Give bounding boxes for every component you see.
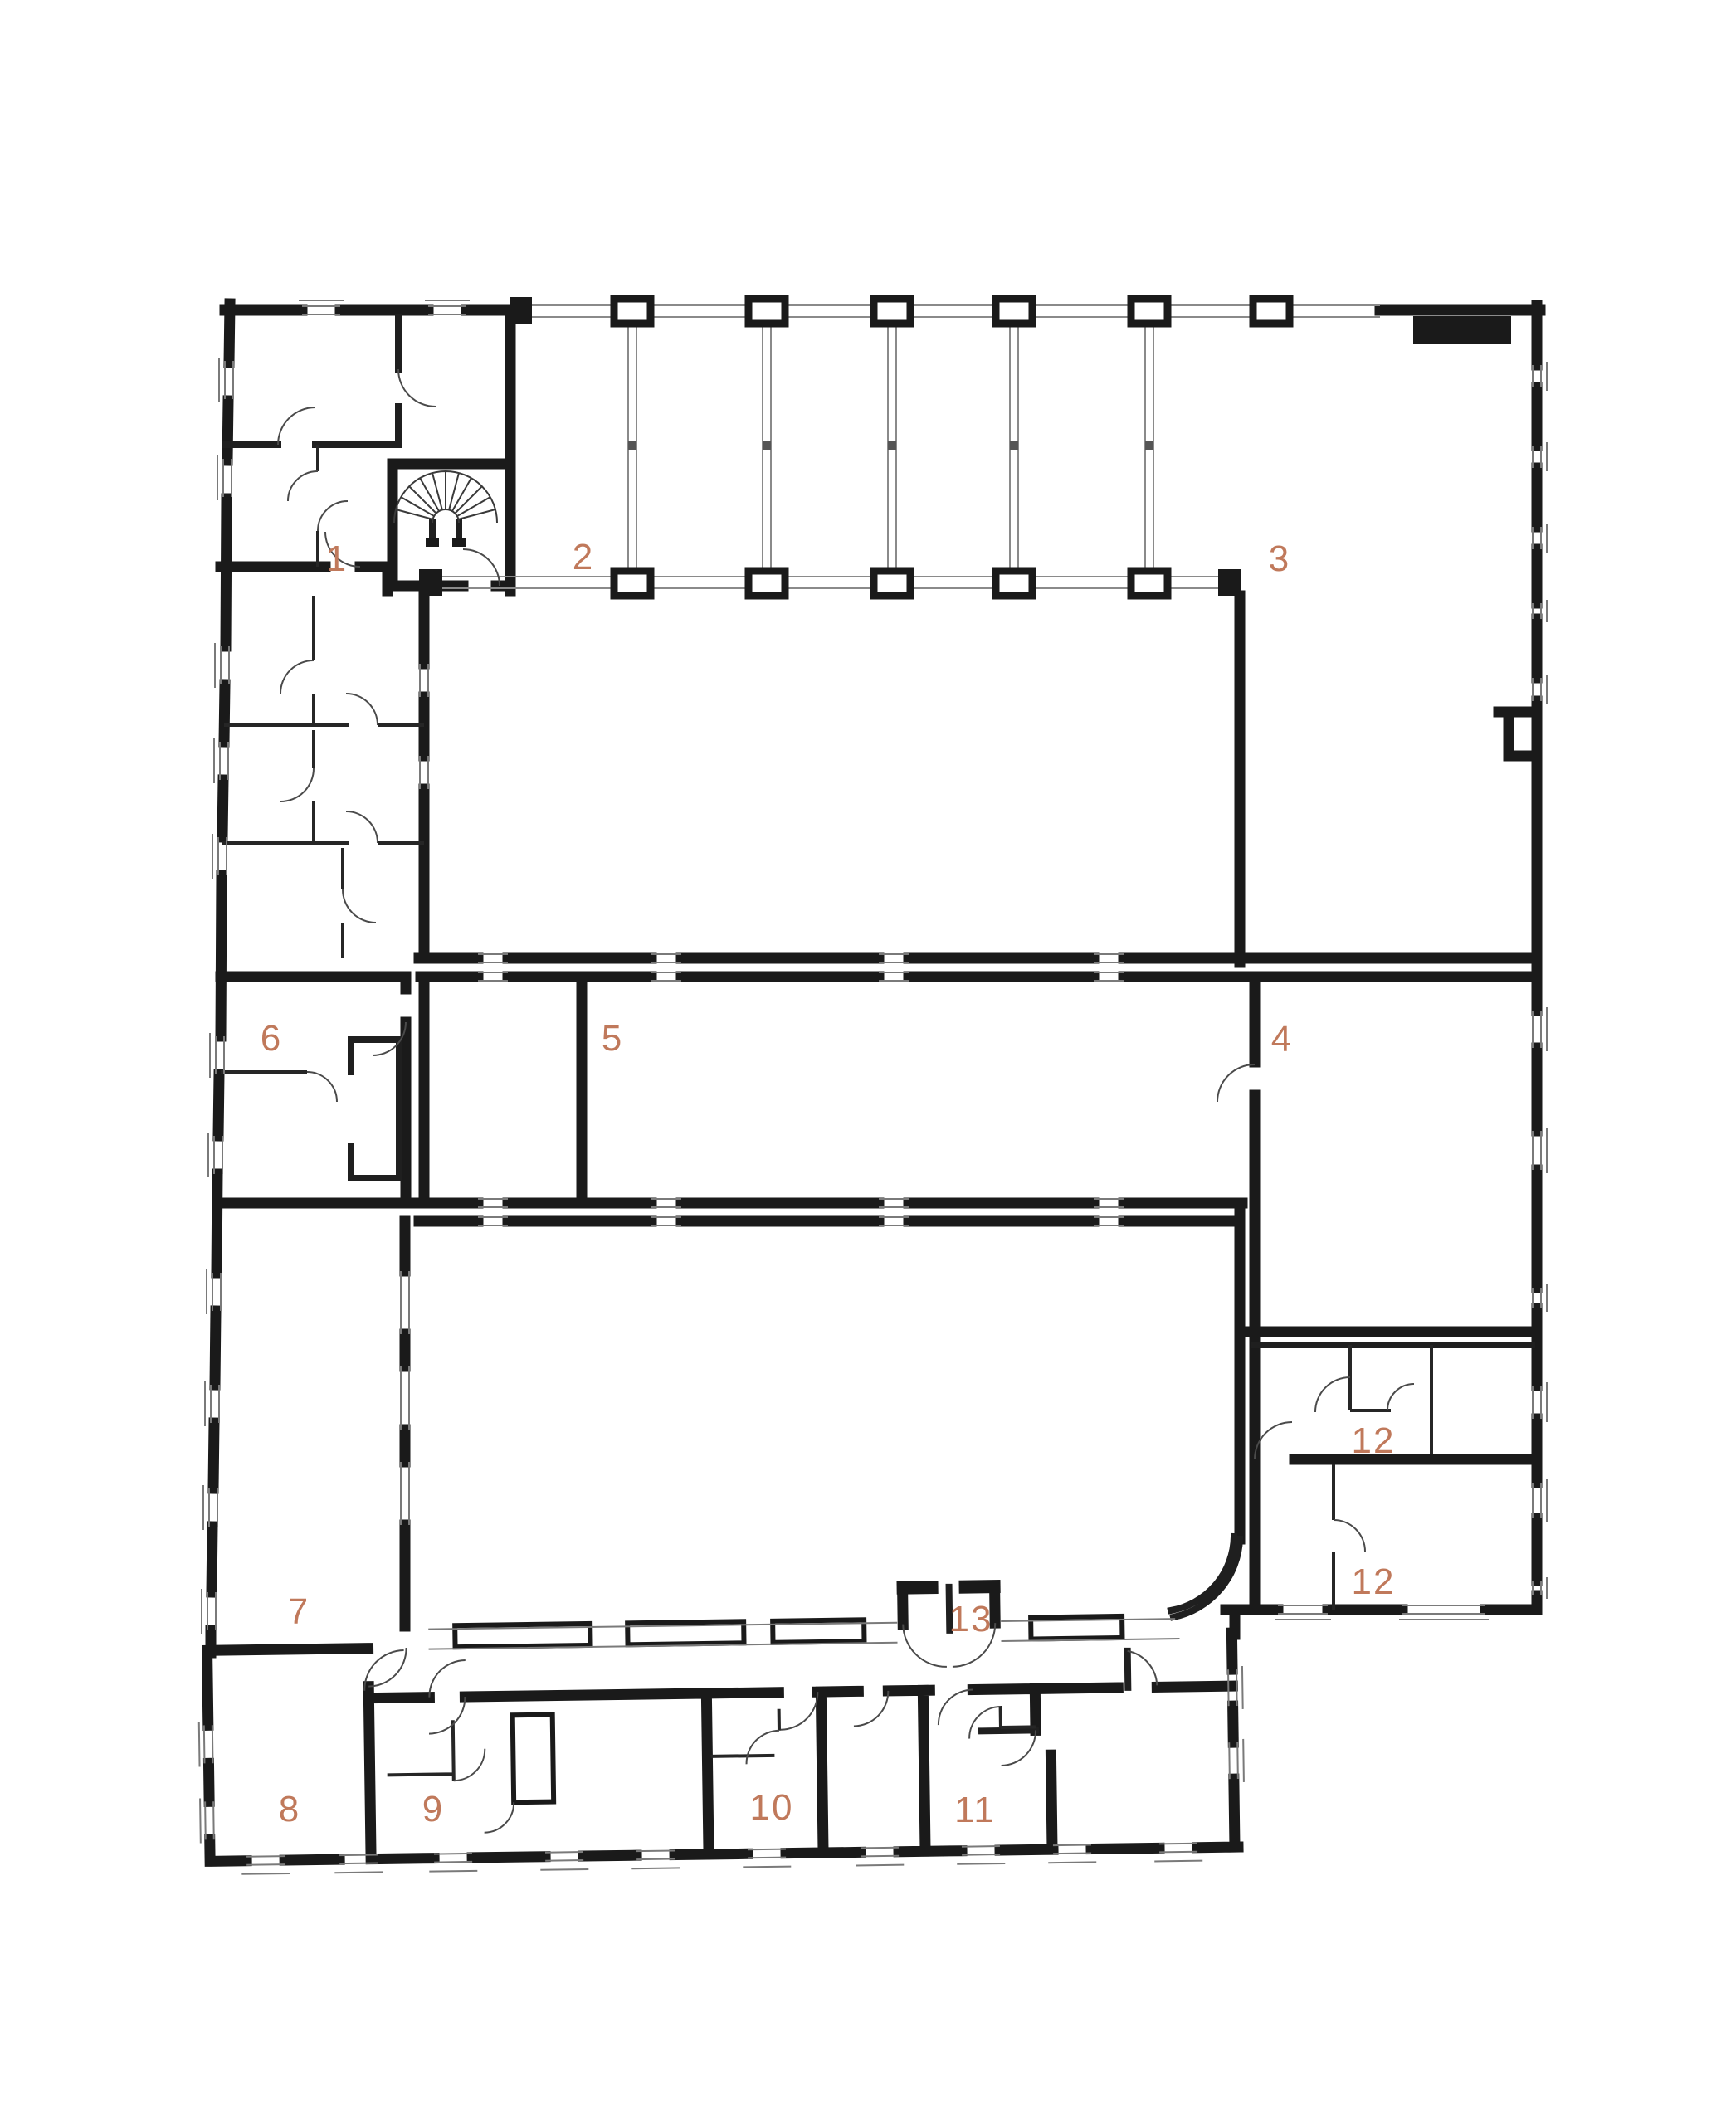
room-label-room-5: 5 xyxy=(602,1018,623,1059)
room-label-room-7: 7 xyxy=(288,1591,310,1632)
room-label-room-11: 11 xyxy=(954,1790,996,1830)
room-label-room-12-lower: 12 xyxy=(1352,1561,1396,1602)
room-label-room-10: 10 xyxy=(750,1787,794,1828)
south-wing xyxy=(197,1576,1246,1875)
south-wing-glazing xyxy=(197,1618,1245,1875)
room-label-room-12-upper: 12 xyxy=(1352,1420,1396,1461)
floor-plan-sheet: 1234567891011121213 xyxy=(0,0,1736,2124)
room-label-room-13: 13 xyxy=(949,1599,993,1639)
secondary-walls xyxy=(226,318,1532,1617)
exterior-and-main-walls xyxy=(211,304,1540,1653)
floor-plan-drawing: 1234567891011121213 xyxy=(0,0,1736,2124)
top-right-wall-notch xyxy=(1413,316,1511,344)
room-label-room-6: 6 xyxy=(261,1018,282,1059)
room-label-room-9: 9 xyxy=(422,1789,444,1829)
room-label-room-8: 8 xyxy=(279,1789,300,1829)
room-label-room-1: 1 xyxy=(326,538,348,579)
room-label-room-3: 3 xyxy=(1269,538,1290,579)
hall-bay-grid xyxy=(419,305,1380,588)
spiral-stair xyxy=(394,471,497,547)
room-label-room-2: 2 xyxy=(573,537,594,577)
room-label-room-4: 4 xyxy=(1271,1019,1293,1060)
